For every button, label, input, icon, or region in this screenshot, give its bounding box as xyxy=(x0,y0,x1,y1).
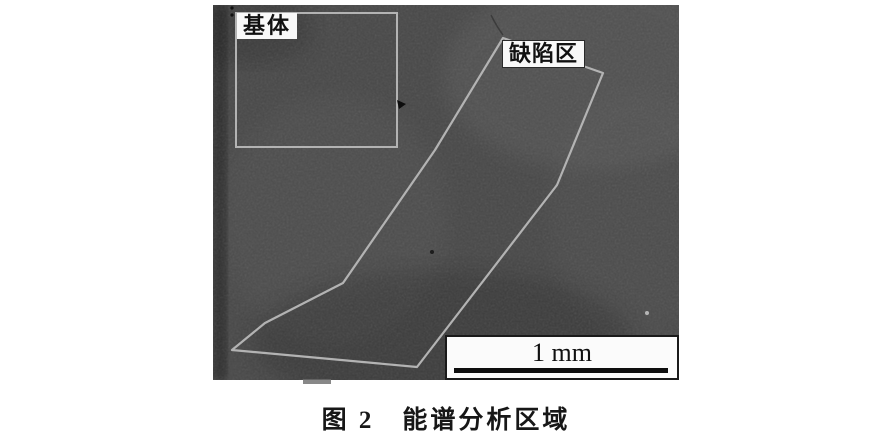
defect-label: 缺陷区 xyxy=(502,40,585,68)
scale-bar-label: 1 mm xyxy=(447,338,677,368)
sem-micrograph: 基体 缺陷区 1 mm xyxy=(213,5,679,380)
scan-artifact xyxy=(303,379,331,384)
scale-bar-line xyxy=(454,368,668,373)
scale-bar: 1 mm xyxy=(445,335,679,380)
figure-page: 基体 缺陷区 1 mm 图 2 能谱分析区域 xyxy=(0,0,891,440)
figure-caption: 图 2 能谱分析区域 xyxy=(213,400,679,436)
photo-grain-overlay xyxy=(213,5,679,380)
matrix-label: 基体 xyxy=(237,13,297,39)
micrograph-canvas xyxy=(213,5,679,380)
